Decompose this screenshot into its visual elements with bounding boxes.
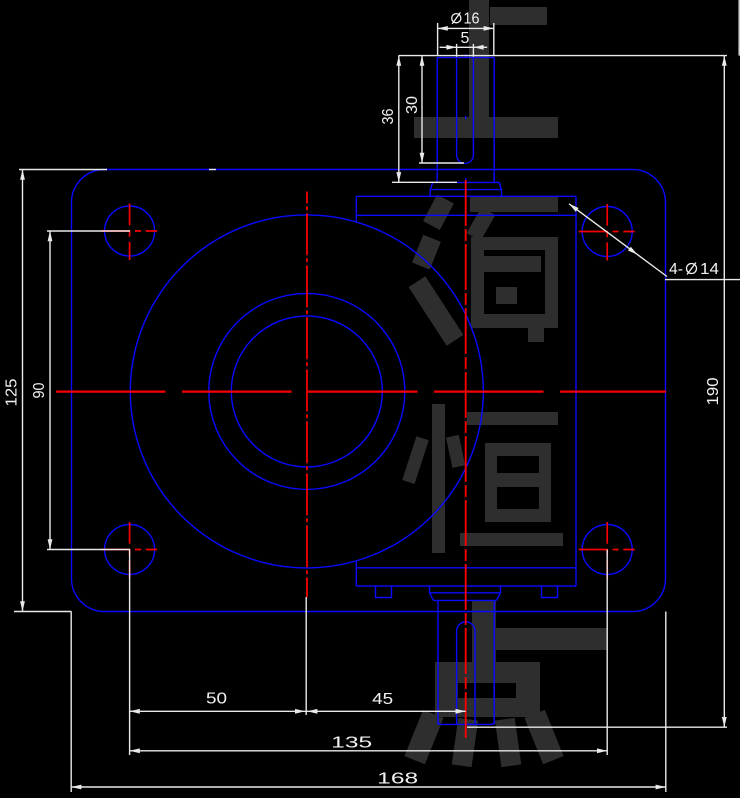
svg-text:190: 190 (705, 377, 722, 405)
svg-text:168: 168 (377, 771, 418, 788)
svg-text:135: 135 (331, 735, 372, 752)
svg-text:30: 30 (404, 96, 421, 114)
svg-text:16: 16 (464, 11, 480, 28)
svg-text:90: 90 (31, 382, 48, 398)
svg-text:50: 50 (206, 691, 227, 708)
svg-text:5: 5 (461, 30, 470, 47)
svg-text:36: 36 (380, 108, 397, 124)
svg-text:125: 125 (4, 378, 21, 406)
svg-text:14: 14 (700, 261, 719, 278)
svg-text:4-: 4- (669, 261, 683, 278)
svg-text:45: 45 (372, 691, 393, 708)
